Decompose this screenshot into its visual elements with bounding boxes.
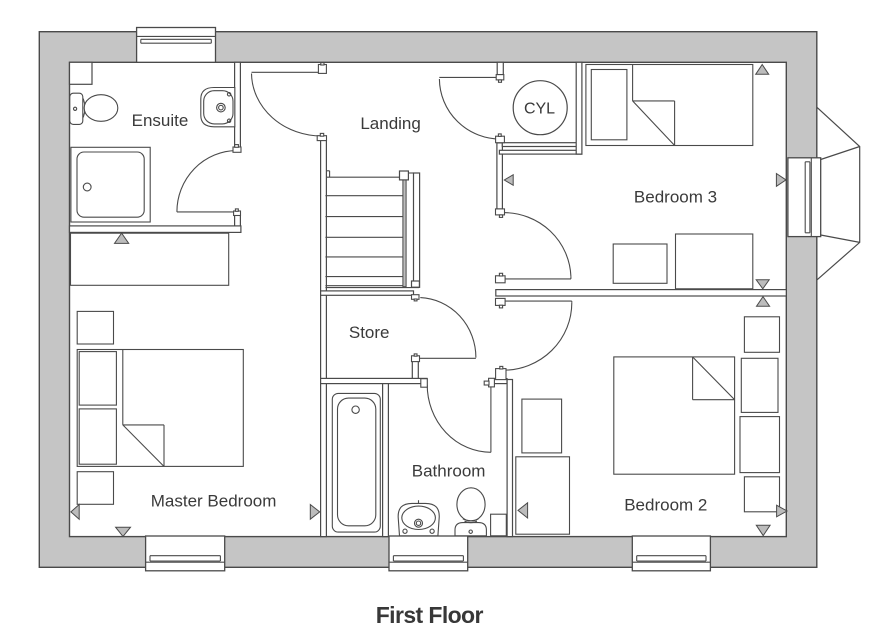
svg-text:Bedroom 2: Bedroom 2 (624, 496, 707, 515)
svg-text:Landing: Landing (360, 114, 421, 133)
svg-text:Master Bedroom: Master Bedroom (151, 492, 277, 511)
svg-text:Bedroom 3: Bedroom 3 (634, 188, 717, 207)
svg-text:Store: Store (349, 323, 390, 342)
svg-text:Ensuite: Ensuite (132, 111, 189, 130)
svg-text:Bathroom: Bathroom (412, 462, 486, 481)
svg-text:First Floor: First Floor (376, 602, 484, 628)
svg-text:CYL: CYL (524, 100, 555, 117)
